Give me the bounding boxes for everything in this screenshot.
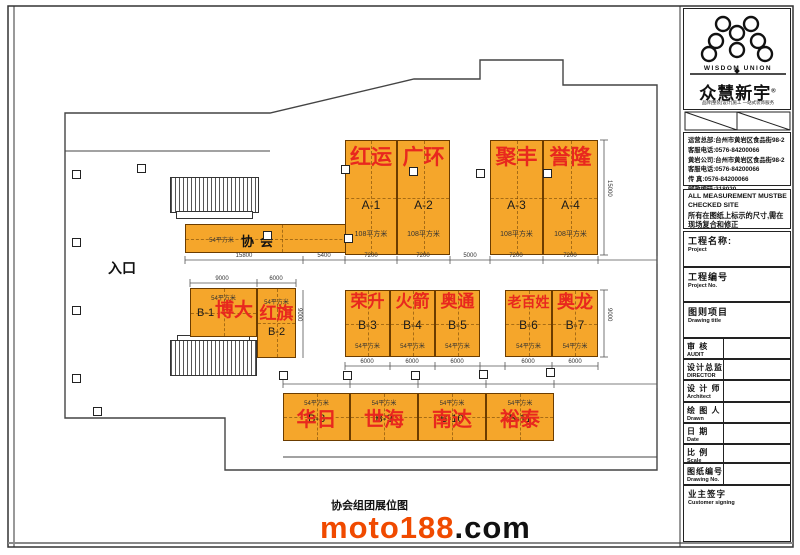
booth-area: 54平方米 [553, 341, 597, 350]
booth-tenant-name: 老百姓 [506, 296, 551, 310]
booth-B-10: 54平方米 B-10 南达 [418, 393, 486, 441]
drawing-sheet: 54平方米 协会 红运 A-1 108平方米 广环 A-2 108平方米 聚丰 … [0, 0, 800, 555]
column-square [543, 169, 552, 178]
booth-id: A-4 [544, 198, 597, 212]
booth-A-4: 誉隆 A-4 108平方米 [543, 140, 598, 255]
column-square [93, 407, 102, 416]
column-square [546, 368, 555, 377]
field-customer-signing: 业主签字 Customer signing [683, 485, 791, 542]
booth-B-6: 老百姓 B-6 54平方米 [505, 290, 552, 357]
field-label-cn: 工程编号 [688, 270, 790, 283]
field-label-en: DIRECTOR [687, 373, 721, 379]
watermark-suffix: .com [454, 510, 530, 545]
booth-A-2: 广环 A-2 108平方米 [397, 140, 450, 255]
column-square [72, 238, 81, 247]
booth-id: B-6 [506, 318, 551, 332]
booth-area: 54平方米 [391, 341, 434, 350]
booth-id: B-5 [436, 318, 479, 332]
booth-tenant-name: 世海 [351, 409, 417, 429]
booth-tenant-name: 裕泰 [487, 409, 553, 429]
field-drawing-no: 图纸编号Drawing No. [683, 463, 791, 485]
field-label-cn: 图则项目 [688, 305, 790, 318]
dim-b2-height: 9000 [296, 308, 302, 321]
column-square [344, 234, 353, 243]
field-label-cn: 图纸编号 [687, 466, 721, 477]
booth-tenant-name: 火箭 [391, 294, 434, 311]
column-square [341, 165, 350, 174]
dim-a-gap: 5000 [463, 253, 476, 259]
field-label-cn: 审 核 [687, 341, 721, 352]
booth-B-9: 54平方米 B-9 世海 [350, 393, 418, 441]
watermark: moto188.com [320, 510, 531, 546]
dim-a4-width: 7200 [563, 253, 576, 259]
booth-area: 54平方米 [419, 398, 485, 407]
field-label-cn: 设 计 师 [687, 383, 721, 394]
booth-area: 108平方米 [346, 229, 396, 239]
booth-area: 108平方米 [398, 229, 449, 239]
booth-id: A-3 [491, 198, 542, 212]
dim-b3-width: 6000 [360, 359, 373, 365]
booth-A-3: 聚丰 A-3 108平方米 [490, 140, 543, 255]
field-project-no: 工程编号 Project No. [683, 267, 791, 302]
field-label-cn: 比 例 [687, 447, 721, 458]
booth-tenant-name: 誉隆 [544, 147, 597, 168]
booth-area: 54平方米 [284, 398, 349, 407]
column-square [137, 164, 146, 173]
column-square [263, 231, 272, 240]
field-project-name: 工程名称: Project [683, 231, 791, 267]
booth-id: B-2 [258, 326, 295, 338]
field-date: 日 期Date [683, 423, 791, 444]
contact-block: 运营总部:台州市黄岩区食品街98-2 客服电话:0576-84200066 黄岩… [683, 132, 791, 186]
field-label-cn: 工程名称: [688, 234, 790, 247]
dim-a1-width: 7200 [364, 253, 377, 259]
booth-area: 108平方米 [491, 229, 542, 239]
dim-b-height: 9000 [606, 308, 612, 321]
field-label-cn: 业主签字 [688, 488, 790, 500]
booth-area: 54平方米 [506, 341, 551, 350]
booth-tenant-name: 红运 [346, 147, 396, 168]
dim-a-height: 15000 [606, 180, 612, 197]
field-drawing-title: 图则项目 Drawing title [683, 302, 791, 338]
field-label-en: Drawn [687, 416, 721, 422]
booth-B-1: 54平方米 B-1 博大 [190, 288, 257, 337]
notice-en-line: CHECKED SITE [688, 202, 790, 211]
field-architect: 设 计 师Architect [683, 380, 791, 402]
field-label-en: Project No. [688, 283, 790, 289]
column-square [72, 170, 81, 179]
field-label-en: Drawing title [688, 318, 790, 324]
logo-en-text: WISDOM UNION [684, 65, 792, 72]
booth-tenant-name: 奥通 [436, 294, 479, 311]
booth-tenant-name: 协会 [241, 231, 279, 250]
field-label-en: Drawing No. [687, 477, 721, 483]
booth-B-2: 54平方米 红旗 B-2 [257, 288, 296, 358]
column-square [279, 371, 288, 380]
field-label-en: AUDIT [687, 352, 721, 358]
field-label-cn: 日 期 [687, 426, 721, 437]
contact-line: 客服电话:0576-84200066 [688, 165, 790, 175]
booth-id: A-2 [398, 198, 449, 212]
dim-a3-width: 7200 [509, 253, 522, 259]
field-scale: 比 例Scale [683, 444, 791, 463]
column-square [72, 306, 81, 315]
column-square [343, 371, 352, 380]
column-square [476, 169, 485, 178]
column-square [411, 371, 420, 380]
escalator-top [170, 177, 259, 213]
escalator-bottom [170, 340, 257, 376]
contact-line: 客服电话:0576-84200066 [688, 146, 790, 156]
logo-tagline: 品牌|整装|设计|施工 一站式装饰服务 [684, 100, 792, 106]
dim-a2-width: 7200 [416, 253, 429, 259]
dim-association-width: 15800 [236, 253, 253, 259]
dim-b4-width: 6000 [405, 359, 418, 365]
contact-line: 运营总部:台州市黄岩区食品街98-2 [688, 136, 790, 146]
booth-B-11: 54平方米 B-11 裕泰 [486, 393, 554, 441]
field-label-cn: 绘 图 人 [687, 405, 721, 416]
booth-id: A-1 [346, 198, 396, 212]
booth-id: B-7 [553, 318, 597, 332]
booth-B-8: 54平方米 B-8 华日 [283, 393, 350, 441]
booth-tenant-name: 聚丰 [491, 147, 542, 168]
notice-block: ALL MEASUREMENT MUSTBE CHECKED SITE 所有在图… [683, 189, 791, 229]
booth-B-5: 奥通 B-5 54平方米 [435, 290, 480, 357]
notice-en-line: ALL MEASUREMENT MUSTBE [688, 193, 790, 202]
booth-tenant-name: 奥龙 [553, 294, 597, 312]
booth-tenant-name: 广环 [398, 147, 449, 168]
field-label-en: Architect [687, 394, 721, 400]
dim-left-gap: 5400 [317, 253, 330, 259]
field-label-en: Customer signing [688, 500, 738, 506]
booth-id: B-3 [346, 318, 389, 332]
column-square [479, 370, 488, 379]
booth-tenant-name: 红旗 [258, 306, 295, 323]
contact-line: 传 真:0576-84200066 [688, 175, 790, 185]
booth-area: 54平方米 [346, 341, 389, 350]
booth-area: 108平方米 [544, 229, 597, 239]
field-director: 设计总监DIRECTOR [683, 359, 791, 380]
booth-tenant-name: 华日 [284, 409, 349, 429]
booth-area: 54平方米 [487, 398, 553, 407]
booth-area: 54平方米 [126, 235, 317, 244]
column-square [72, 374, 81, 383]
field-label-en: Date [687, 437, 721, 443]
booth-tenant-name: 博大 [215, 301, 253, 320]
field-label-cn: 设计总监 [687, 362, 721, 373]
booth-B-4: 火箭 B-4 54平方米 [390, 290, 435, 357]
field-label-en: Project [688, 247, 790, 253]
logo-block: WISDOM UNION 众慧新宇® 品牌|整装|设计|施工 一站式装饰服务 [683, 8, 791, 110]
booth-id: B-4 [391, 318, 434, 332]
dim-b6-width: 6000 [521, 359, 534, 365]
entrance-label: 入口 [108, 258, 136, 278]
dim-b7-width: 6000 [568, 359, 581, 365]
notice-cn-line: 现场复合和修正 [688, 220, 790, 230]
booth-tenant-name: 南达 [419, 409, 485, 429]
booth-tenant-name: 荣升 [346, 294, 389, 311]
dim-b2-width: 6000 [269, 276, 282, 282]
booth-area: 54平方米 [351, 398, 417, 407]
watermark-main: moto188 [320, 510, 454, 545]
column-square [409, 167, 418, 176]
dim-b1-width: 9000 [215, 276, 228, 282]
booth-B-7: 奥龙 B-7 54平方米 [552, 290, 598, 357]
dim-b5-width: 6000 [450, 359, 463, 365]
escalator-top-landing [176, 211, 253, 219]
registered-mark: ® [771, 88, 776, 94]
booth-B-3: 荣升 B-3 54平方米 [345, 290, 390, 357]
notice-cn-line: 所有在图纸上标示的尺寸,需在 [688, 211, 790, 221]
booth-area: 54平方米 [436, 341, 479, 350]
contact-line: 黄岩公司:台州市黄岩区食品街98-2 [688, 156, 790, 166]
field-drawn: 绘 图 人Drawn [683, 402, 791, 423]
field-audit: 审 核AUDIT [683, 338, 791, 359]
